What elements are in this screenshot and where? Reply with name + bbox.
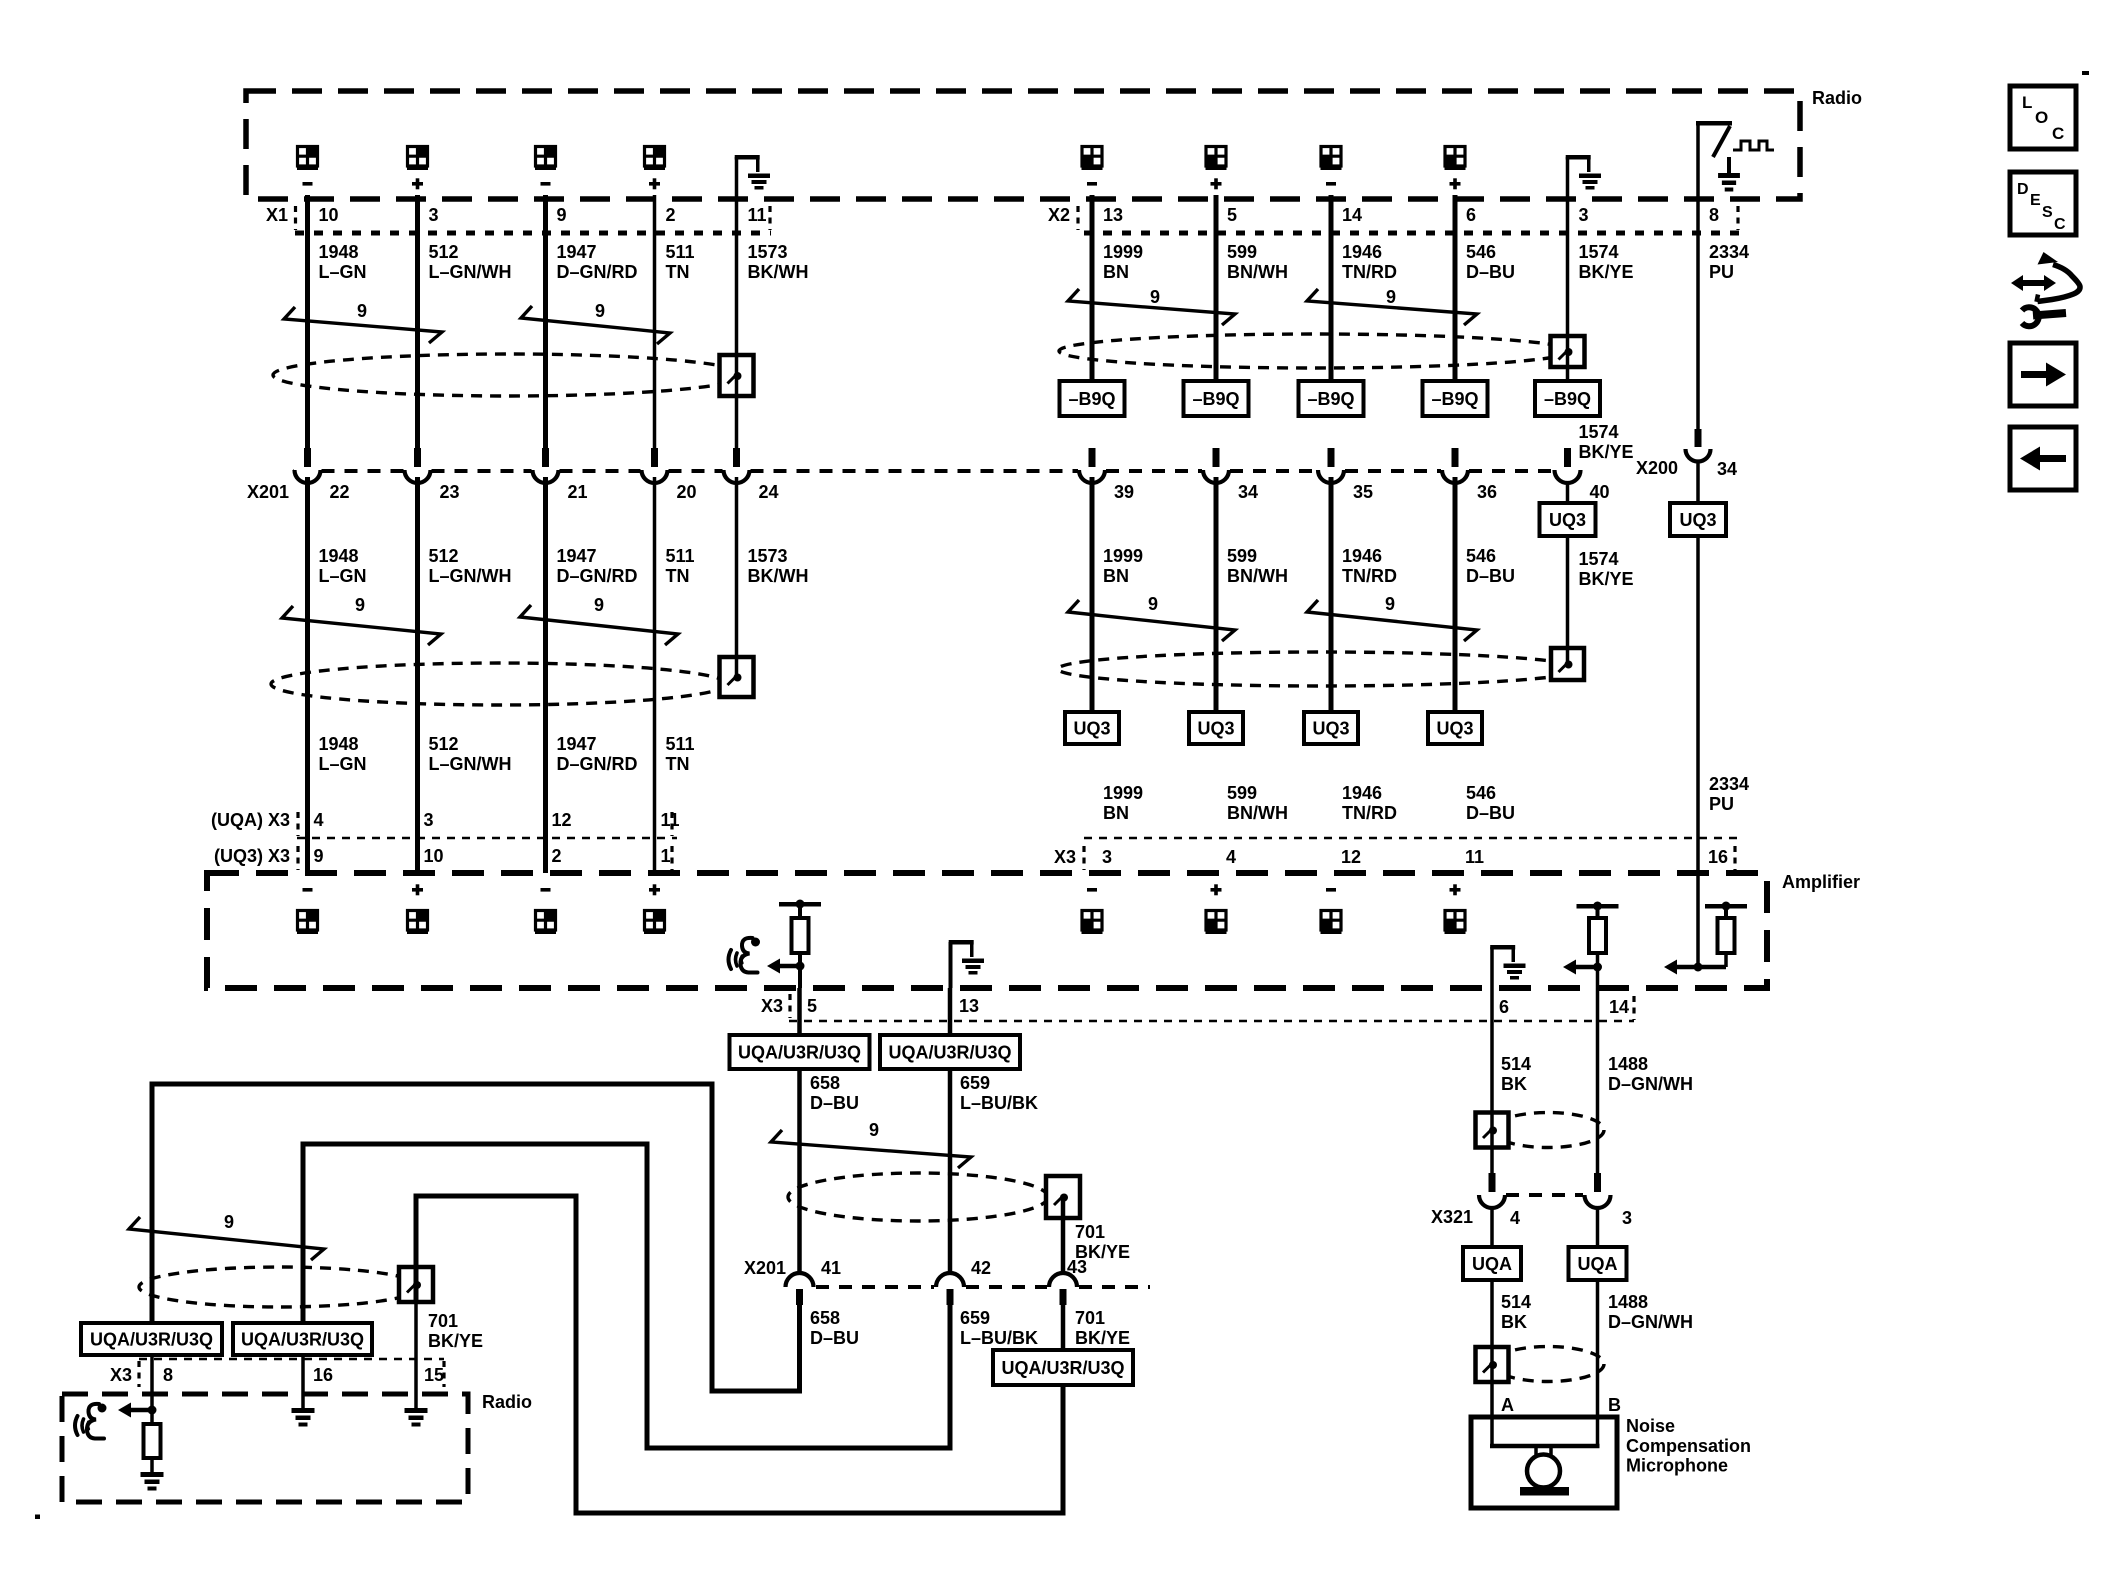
svg-text:BK/WH: BK/WH bbox=[748, 566, 809, 586]
svg-text:511: 511 bbox=[666, 734, 695, 754]
svg-text:BK: BK bbox=[1501, 1074, 1527, 1094]
svg-text:UQA/U3R/U3Q: UQA/U3R/U3Q bbox=[90, 1330, 213, 1350]
svg-text:10: 10 bbox=[424, 846, 444, 866]
svg-text:1947: 1947 bbox=[557, 734, 597, 754]
svg-text:–B9Q: –B9Q bbox=[1544, 389, 1591, 409]
svg-text:40: 40 bbox=[1590, 482, 1610, 502]
svg-text:1948: 1948 bbox=[319, 734, 359, 754]
svg-text:X201: X201 bbox=[744, 1258, 786, 1278]
svg-text:TN/RD: TN/RD bbox=[1342, 803, 1397, 823]
svg-text:6: 6 bbox=[1466, 205, 1476, 225]
svg-text:8: 8 bbox=[163, 1365, 173, 1385]
svg-text:S: S bbox=[2042, 204, 2053, 221]
svg-text:701: 701 bbox=[1075, 1308, 1105, 1328]
svg-text:D–BU: D–BU bbox=[1466, 566, 1515, 586]
svg-text:L–GN/WH: L–GN/WH bbox=[429, 566, 512, 586]
svg-text:–B9Q: –B9Q bbox=[1431, 389, 1478, 409]
svg-text:9: 9 bbox=[594, 595, 604, 615]
svg-text:546: 546 bbox=[1466, 242, 1496, 262]
svg-text:L–BU/BK: L–BU/BK bbox=[960, 1093, 1038, 1113]
svg-text:21: 21 bbox=[568, 482, 588, 502]
svg-text:1947: 1947 bbox=[557, 242, 597, 262]
svg-text:1: 1 bbox=[661, 846, 671, 866]
svg-text:659: 659 bbox=[960, 1308, 990, 1328]
svg-text:BN: BN bbox=[1103, 262, 1129, 282]
svg-text:(UQ3) X3: (UQ3) X3 bbox=[214, 846, 290, 866]
svg-text:511: 511 bbox=[666, 546, 695, 566]
svg-text:514: 514 bbox=[1501, 1054, 1531, 1074]
svg-text:TN/RD: TN/RD bbox=[1342, 566, 1397, 586]
svg-text:UQ3: UQ3 bbox=[1549, 510, 1586, 530]
svg-text:16: 16 bbox=[1708, 847, 1728, 867]
svg-text:5: 5 bbox=[1227, 205, 1237, 225]
svg-text:E: E bbox=[2030, 192, 2041, 209]
svg-text:TN: TN bbox=[666, 754, 690, 774]
svg-text:512: 512 bbox=[429, 546, 459, 566]
svg-text:2334: 2334 bbox=[1709, 774, 1749, 794]
svg-text:1574: 1574 bbox=[1579, 242, 1619, 262]
svg-text:11: 11 bbox=[661, 810, 680, 830]
svg-text:1574: 1574 bbox=[1579, 422, 1619, 442]
svg-text:D–BU: D–BU bbox=[1466, 803, 1515, 823]
svg-text:BK/YE: BK/YE bbox=[428, 1331, 483, 1351]
svg-text:9: 9 bbox=[1385, 594, 1395, 614]
svg-text:658: 658 bbox=[810, 1308, 840, 1328]
svg-text:12: 12 bbox=[1341, 847, 1361, 867]
svg-text:D–GN/WH: D–GN/WH bbox=[1608, 1074, 1693, 1094]
svg-text:6: 6 bbox=[1499, 997, 1509, 1017]
svg-text:2: 2 bbox=[552, 846, 562, 866]
svg-text:11: 11 bbox=[748, 205, 767, 225]
svg-text:B: B bbox=[1608, 1395, 1621, 1415]
svg-text:1488: 1488 bbox=[1608, 1054, 1648, 1074]
svg-text:L: L bbox=[2022, 93, 2032, 112]
svg-text:(UQA) X3: (UQA) X3 bbox=[211, 810, 290, 830]
svg-text:BN: BN bbox=[1103, 566, 1129, 586]
svg-text:1999: 1999 bbox=[1103, 783, 1143, 803]
svg-text:–B9Q: –B9Q bbox=[1068, 389, 1115, 409]
svg-text:1573: 1573 bbox=[748, 546, 788, 566]
svg-text:D–GN/RD: D–GN/RD bbox=[557, 754, 638, 774]
svg-text:36: 36 bbox=[1477, 482, 1497, 502]
svg-text:UQA/U3R/U3Q: UQA/U3R/U3Q bbox=[1001, 1358, 1124, 1378]
svg-text:BK/YE: BK/YE bbox=[1579, 262, 1634, 282]
svg-text:1999: 1999 bbox=[1103, 242, 1143, 262]
svg-text:1947: 1947 bbox=[557, 546, 597, 566]
svg-text:9: 9 bbox=[224, 1212, 234, 1232]
svg-text:20: 20 bbox=[677, 482, 697, 502]
svg-text:X201: X201 bbox=[247, 482, 289, 502]
svg-text:A: A bbox=[1501, 1395, 1514, 1415]
svg-text:BN/WH: BN/WH bbox=[1227, 803, 1288, 823]
svg-text:4: 4 bbox=[1510, 1208, 1520, 1228]
svg-text:D: D bbox=[2017, 181, 2029, 198]
svg-text:3: 3 bbox=[424, 810, 434, 830]
svg-text:3: 3 bbox=[1579, 205, 1589, 225]
svg-text:C: C bbox=[2054, 216, 2066, 233]
svg-text:X1: X1 bbox=[266, 205, 288, 225]
svg-text:14: 14 bbox=[1609, 997, 1629, 1017]
svg-text:X3: X3 bbox=[110, 1365, 132, 1385]
svg-text:TN: TN bbox=[666, 262, 690, 282]
svg-text:D–GN/WH: D–GN/WH bbox=[1608, 1312, 1693, 1332]
svg-text:D–BU: D–BU bbox=[810, 1328, 859, 1348]
svg-text:UQA/U3R/U3Q: UQA/U3R/U3Q bbox=[738, 1043, 861, 1063]
svg-text:Noise: Noise bbox=[1626, 1416, 1675, 1436]
svg-text:X200: X200 bbox=[1636, 458, 1678, 478]
svg-text:546: 546 bbox=[1466, 546, 1496, 566]
svg-text:L–BU/BK: L–BU/BK bbox=[960, 1328, 1038, 1348]
svg-text:1946: 1946 bbox=[1342, 783, 1382, 803]
svg-text:16: 16 bbox=[313, 1365, 333, 1385]
svg-text:3: 3 bbox=[1622, 1208, 1632, 1228]
svg-text:L–GN: L–GN bbox=[319, 566, 367, 586]
svg-text:PU: PU bbox=[1709, 262, 1734, 282]
svg-text:512: 512 bbox=[429, 242, 459, 262]
svg-text:D–GN/RD: D–GN/RD bbox=[557, 566, 638, 586]
svg-text:1946: 1946 bbox=[1342, 242, 1382, 262]
svg-text:X3: X3 bbox=[1054, 847, 1076, 867]
svg-text:UQ3: UQ3 bbox=[1073, 719, 1110, 739]
svg-text:D–BU: D–BU bbox=[1466, 262, 1515, 282]
svg-text:9: 9 bbox=[355, 595, 365, 615]
svg-text:PU: PU bbox=[1709, 794, 1734, 814]
svg-text:11: 11 bbox=[1465, 847, 1484, 867]
svg-text:1488: 1488 bbox=[1608, 1292, 1648, 1312]
svg-text:L–GN/WH: L–GN/WH bbox=[429, 262, 512, 282]
svg-text:4: 4 bbox=[1226, 847, 1236, 867]
svg-text:13: 13 bbox=[959, 996, 979, 1016]
svg-text:34: 34 bbox=[1238, 482, 1258, 502]
svg-text:O: O bbox=[2035, 108, 2048, 127]
svg-text:659: 659 bbox=[960, 1073, 990, 1093]
svg-text:3: 3 bbox=[429, 205, 439, 225]
svg-text:9: 9 bbox=[1386, 287, 1396, 307]
svg-text:L–GN/WH: L–GN/WH bbox=[429, 754, 512, 774]
svg-text:Compensation: Compensation bbox=[1626, 1436, 1751, 1456]
svg-text:BK: BK bbox=[1501, 1312, 1527, 1332]
svg-text:9: 9 bbox=[869, 1120, 879, 1140]
svg-text:Amplifier: Amplifier bbox=[1782, 872, 1860, 892]
svg-text:1946: 1946 bbox=[1342, 546, 1382, 566]
svg-text:UQA: UQA bbox=[1472, 1254, 1512, 1274]
svg-text:UQ3: UQ3 bbox=[1312, 719, 1349, 739]
svg-text:12: 12 bbox=[552, 810, 572, 830]
svg-text:Microphone: Microphone bbox=[1626, 1456, 1728, 1476]
svg-text:599: 599 bbox=[1227, 546, 1257, 566]
svg-text:39: 39 bbox=[1114, 482, 1134, 502]
svg-text:UQ3: UQ3 bbox=[1436, 719, 1473, 739]
svg-text:Radio: Radio bbox=[482, 1392, 532, 1412]
svg-text:9: 9 bbox=[314, 846, 324, 866]
svg-text:BK/WH: BK/WH bbox=[748, 262, 809, 282]
svg-text:BN: BN bbox=[1103, 803, 1129, 823]
svg-text:1948: 1948 bbox=[319, 242, 359, 262]
svg-text:512: 512 bbox=[429, 734, 459, 754]
svg-text:514: 514 bbox=[1501, 1292, 1531, 1312]
svg-text:658: 658 bbox=[810, 1073, 840, 1093]
svg-text:24: 24 bbox=[759, 482, 779, 502]
svg-text:X321: X321 bbox=[1431, 1207, 1473, 1227]
svg-text:D–BU: D–BU bbox=[810, 1093, 859, 1113]
svg-text:BK/YE: BK/YE bbox=[1075, 1328, 1130, 1348]
svg-text:42: 42 bbox=[971, 1258, 991, 1278]
svg-text:9: 9 bbox=[1148, 594, 1158, 614]
svg-text:BN/WH: BN/WH bbox=[1227, 262, 1288, 282]
svg-text:35: 35 bbox=[1353, 482, 1373, 502]
svg-text:2334: 2334 bbox=[1709, 242, 1749, 262]
svg-text:X3: X3 bbox=[761, 996, 783, 1016]
svg-text:9: 9 bbox=[1150, 287, 1160, 307]
svg-text:–B9Q: –B9Q bbox=[1307, 389, 1354, 409]
svg-text:23: 23 bbox=[440, 482, 460, 502]
svg-text:9: 9 bbox=[557, 205, 567, 225]
svg-text:701: 701 bbox=[1075, 1222, 1105, 1242]
svg-text:L–GN: L–GN bbox=[319, 754, 367, 774]
svg-text:TN: TN bbox=[666, 566, 690, 586]
svg-text:2: 2 bbox=[666, 205, 676, 225]
svg-text:–B9Q: –B9Q bbox=[1192, 389, 1239, 409]
svg-text:1948: 1948 bbox=[319, 546, 359, 566]
svg-text:D–GN/RD: D–GN/RD bbox=[557, 262, 638, 282]
svg-text:9: 9 bbox=[357, 301, 367, 321]
svg-text:UQA: UQA bbox=[1578, 1254, 1618, 1274]
svg-text:22: 22 bbox=[330, 482, 350, 502]
svg-text:701: 701 bbox=[428, 1311, 458, 1331]
svg-text:1999: 1999 bbox=[1103, 546, 1143, 566]
svg-text:1573: 1573 bbox=[748, 242, 788, 262]
svg-text:599: 599 bbox=[1227, 242, 1257, 262]
svg-text:UQ3: UQ3 bbox=[1197, 719, 1234, 739]
svg-text:3: 3 bbox=[1102, 847, 1112, 867]
svg-text:9: 9 bbox=[595, 301, 605, 321]
svg-text:TN/RD: TN/RD bbox=[1342, 262, 1397, 282]
svg-text:C: C bbox=[2052, 124, 2064, 143]
svg-text:L–GN: L–GN bbox=[319, 262, 367, 282]
svg-text:UQA/U3R/U3Q: UQA/U3R/U3Q bbox=[888, 1043, 1011, 1063]
svg-text:34: 34 bbox=[1717, 459, 1737, 479]
svg-text:10: 10 bbox=[319, 205, 339, 225]
svg-text:BK/YE: BK/YE bbox=[1579, 442, 1634, 462]
svg-text:4: 4 bbox=[314, 810, 324, 830]
svg-text:BN/WH: BN/WH bbox=[1227, 566, 1288, 586]
svg-text:8: 8 bbox=[1709, 205, 1719, 225]
svg-text:1574: 1574 bbox=[1579, 549, 1619, 569]
svg-text:UQA/U3R/U3Q: UQA/U3R/U3Q bbox=[241, 1330, 364, 1350]
svg-text:Radio: Radio bbox=[1812, 88, 1862, 108]
svg-text:41: 41 bbox=[821, 1258, 841, 1278]
svg-text:UQ3: UQ3 bbox=[1679, 510, 1716, 530]
svg-text:5: 5 bbox=[807, 996, 817, 1016]
svg-text:511: 511 bbox=[666, 242, 695, 262]
svg-text:15: 15 bbox=[424, 1365, 444, 1385]
svg-text:BK/YE: BK/YE bbox=[1579, 569, 1634, 589]
svg-text:14: 14 bbox=[1342, 205, 1362, 225]
svg-text:546: 546 bbox=[1466, 783, 1496, 803]
svg-text:599: 599 bbox=[1227, 783, 1257, 803]
svg-text:X2: X2 bbox=[1048, 205, 1070, 225]
svg-text:13: 13 bbox=[1103, 205, 1123, 225]
